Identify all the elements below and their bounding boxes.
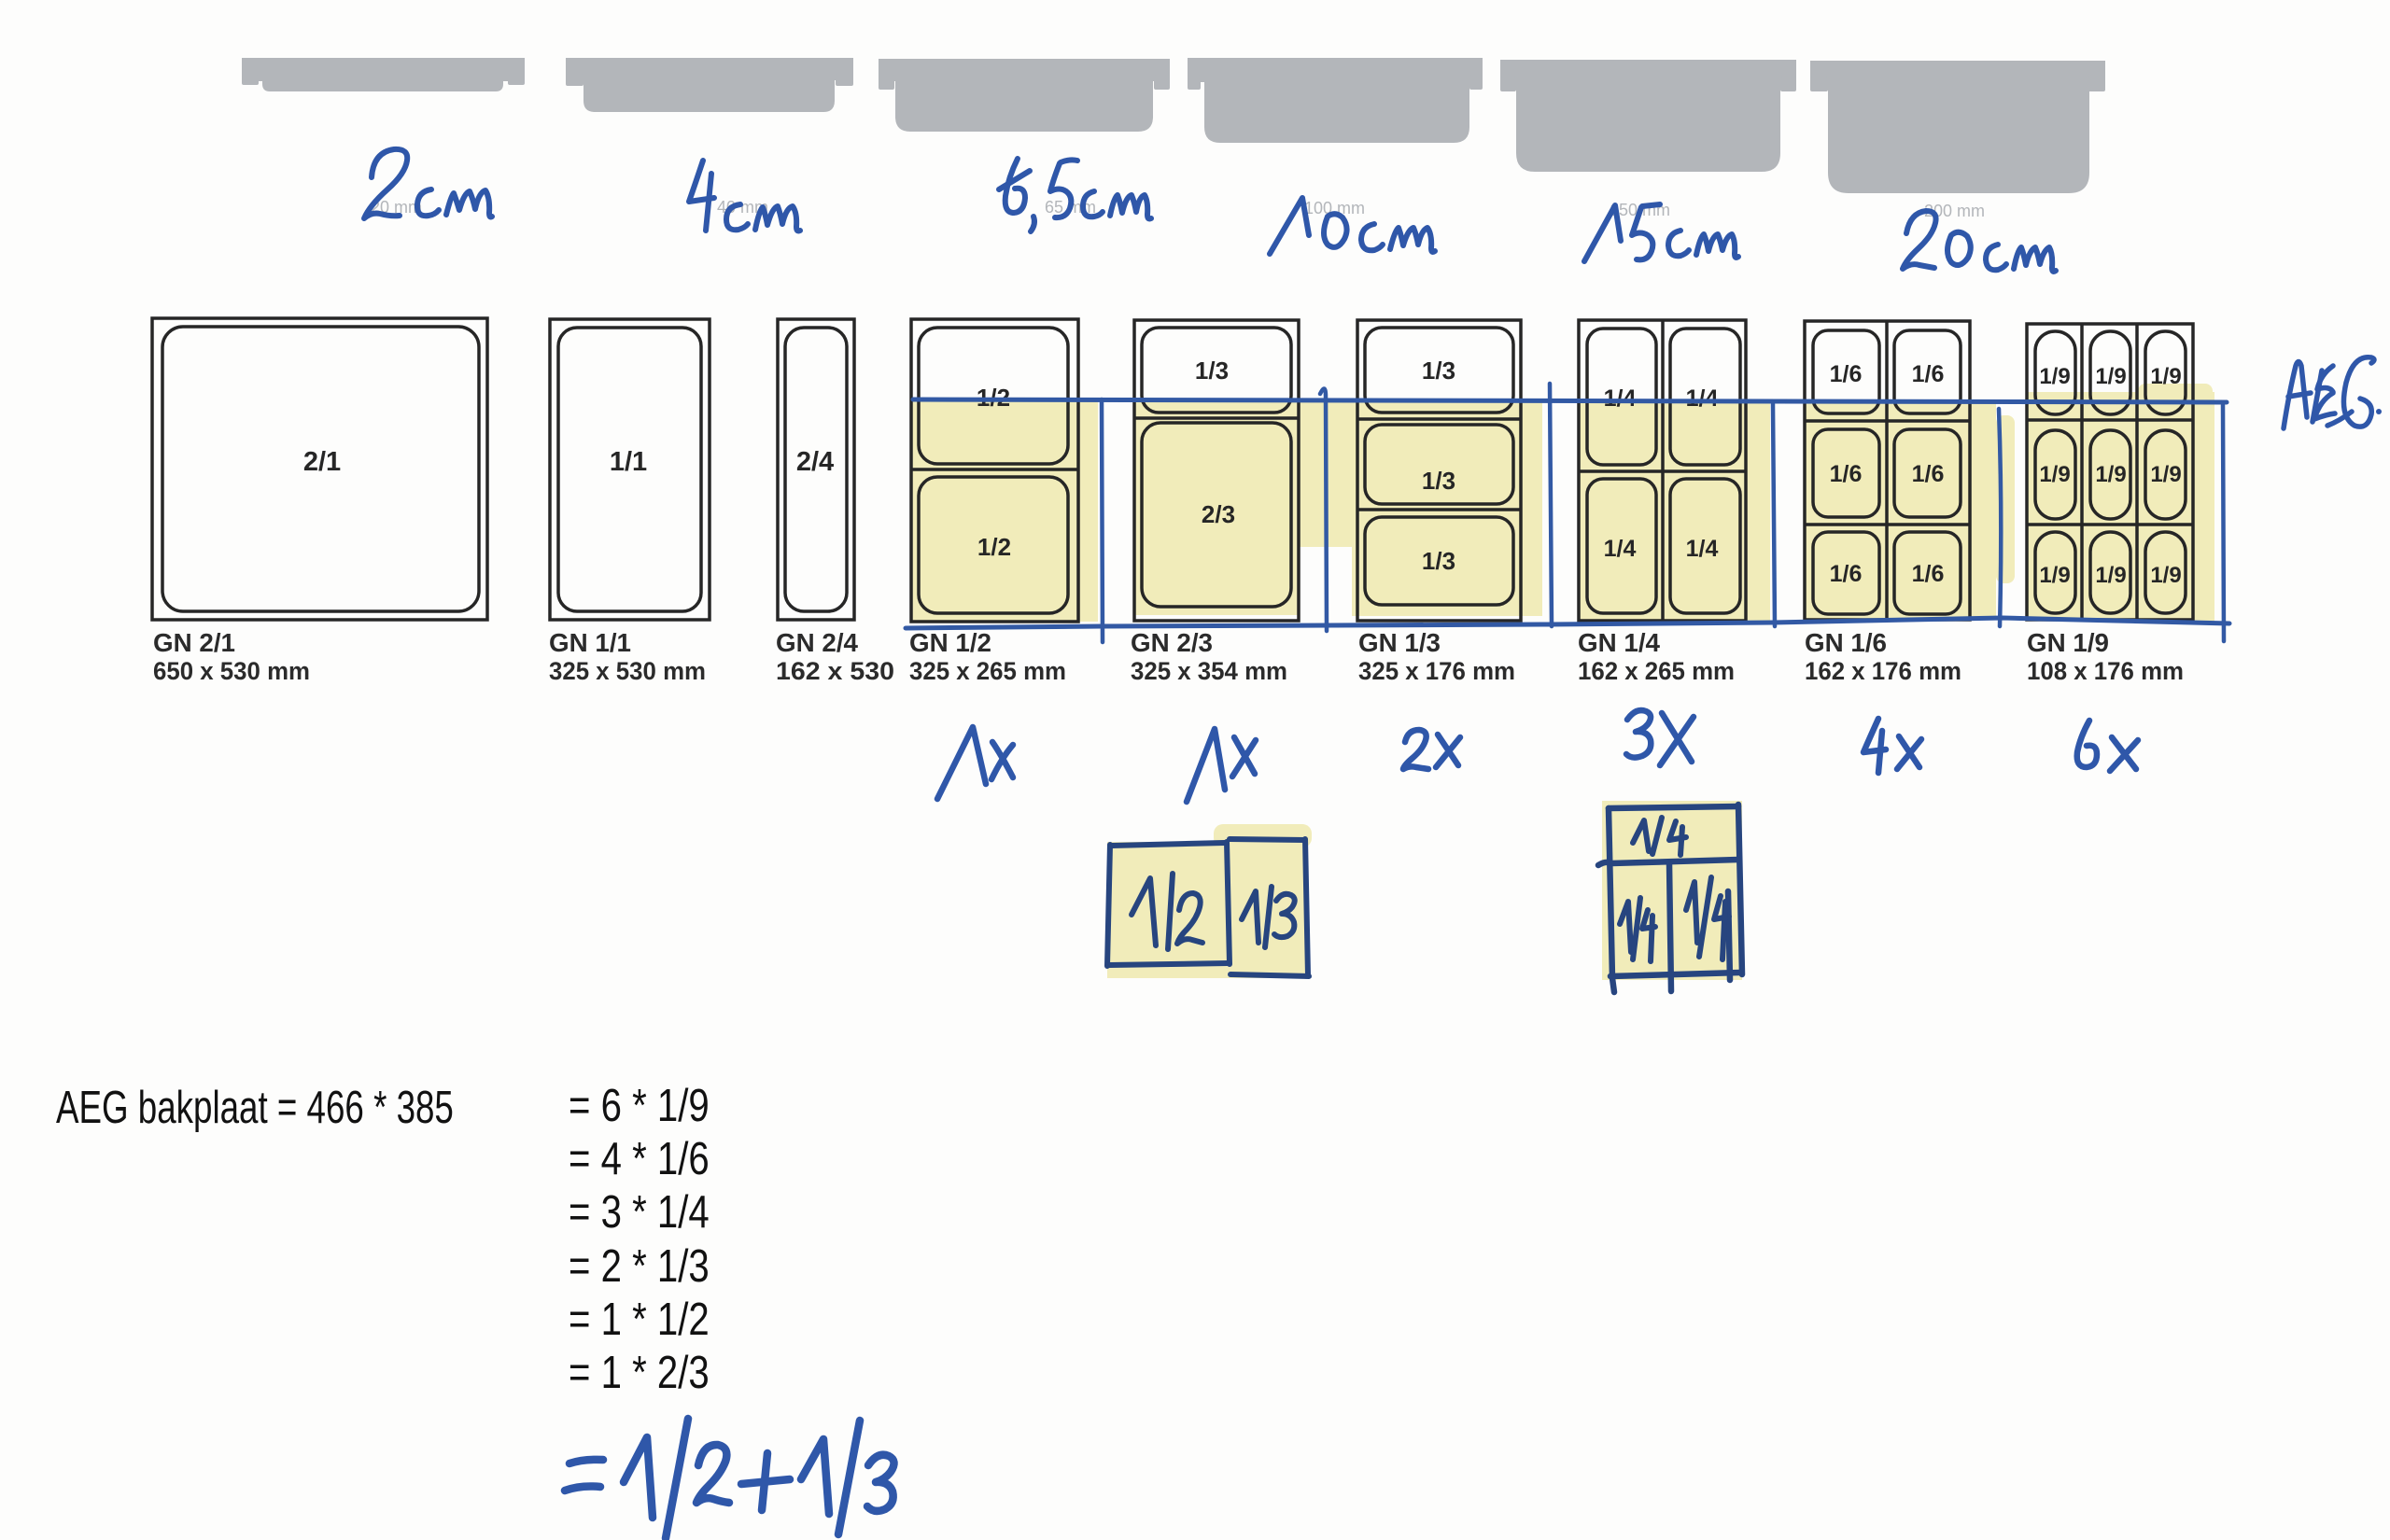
svg-text:1/3: 1/3 <box>1422 467 1455 495</box>
svg-text:1/9: 1/9 <box>2039 364 2070 389</box>
svg-text:1/9: 1/9 <box>2095 462 2126 487</box>
svg-text:162 x 176 mm: 162 x 176 mm <box>1805 657 1961 685</box>
svg-text:1/3: 1/3 <box>1195 357 1229 385</box>
svg-text:= 6 * 1/9: = 6 * 1/9 <box>569 1080 710 1131</box>
svg-text:= 1 * 2/3: = 1 * 2/3 <box>569 1347 710 1398</box>
svg-text:1/6: 1/6 <box>1912 461 1945 487</box>
svg-text:GN 1/6: GN 1/6 <box>1805 628 1887 657</box>
svg-text:GN 2/1: GN 2/1 <box>153 628 235 657</box>
svg-text:325 x 354 mm: 325 x 354 mm <box>1131 657 1287 685</box>
svg-text:1/4: 1/4 <box>1686 385 1719 412</box>
svg-text:108 x 176 mm: 108 x 176 mm <box>2027 657 2184 685</box>
svg-text:GN 1/3: GN 1/3 <box>1358 628 1441 657</box>
svg-text:1/4: 1/4 <box>1686 536 1719 562</box>
svg-text:1/6: 1/6 <box>1912 361 1945 387</box>
svg-text:162 x 530: 162 x 530 <box>776 657 894 685</box>
svg-text:1/1: 1/1 <box>610 447 647 477</box>
svg-text:1/4: 1/4 <box>1604 536 1637 562</box>
svg-text:325 x 176 mm: 325 x 176 mm <box>1358 657 1515 685</box>
svg-text:325 x 265 mm: 325 x 265 mm <box>909 657 1066 685</box>
svg-text:1/9: 1/9 <box>2039 563 2070 588</box>
svg-text:1/9: 1/9 <box>2039 462 2070 487</box>
svg-text:GN 1/2: GN 1/2 <box>909 628 991 657</box>
svg-text:AEG bakplaat = 466 * 385: AEG bakplaat = 466 * 385 <box>56 1083 454 1133</box>
svg-text:1/6: 1/6 <box>1830 561 1863 587</box>
svg-text:GN 1/1: GN 1/1 <box>549 628 631 657</box>
svg-text:1/6: 1/6 <box>1830 461 1863 487</box>
svg-text:1/9: 1/9 <box>2150 563 2181 588</box>
svg-text:GN 1/4: GN 1/4 <box>1578 628 1660 657</box>
svg-text:GN 1/9: GN 1/9 <box>2027 628 2109 657</box>
svg-text:1/3: 1/3 <box>1422 357 1455 385</box>
svg-text:1/9: 1/9 <box>2095 563 2126 588</box>
svg-text:325 x 530 mm: 325 x 530 mm <box>549 657 706 685</box>
svg-text:1/2: 1/2 <box>977 533 1011 561</box>
svg-text:= 4 * 1/6: = 4 * 1/6 <box>569 1133 710 1184</box>
svg-text:162 x 265 mm: 162 x 265 mm <box>1578 657 1735 685</box>
svg-text:= 2 * 1/3: = 2 * 1/3 <box>569 1240 710 1292</box>
svg-text:1/6: 1/6 <box>1912 561 1945 587</box>
svg-text:1/9: 1/9 <box>2150 364 2181 389</box>
svg-text:= 3 * 1/4: = 3 * 1/4 <box>569 1186 710 1238</box>
svg-text:2/1: 2/1 <box>303 447 341 477</box>
svg-text:650 x 530 mm: 650 x 530 mm <box>153 657 310 685</box>
svg-text:1/6: 1/6 <box>1830 361 1863 387</box>
svg-text:1/9: 1/9 <box>2150 462 2181 487</box>
svg-text:2/3: 2/3 <box>1202 500 1235 528</box>
svg-text:GN 2/3: GN 2/3 <box>1131 628 1213 657</box>
svg-text:1/4: 1/4 <box>1604 385 1637 412</box>
svg-text:= 1 * 1/2: = 1 * 1/2 <box>569 1294 710 1345</box>
svg-text:2/4: 2/4 <box>796 447 834 477</box>
svg-text:1/3: 1/3 <box>1422 547 1455 575</box>
svg-text:GN 2/4: GN 2/4 <box>776 628 858 657</box>
svg-text:1/9: 1/9 <box>2095 364 2126 389</box>
